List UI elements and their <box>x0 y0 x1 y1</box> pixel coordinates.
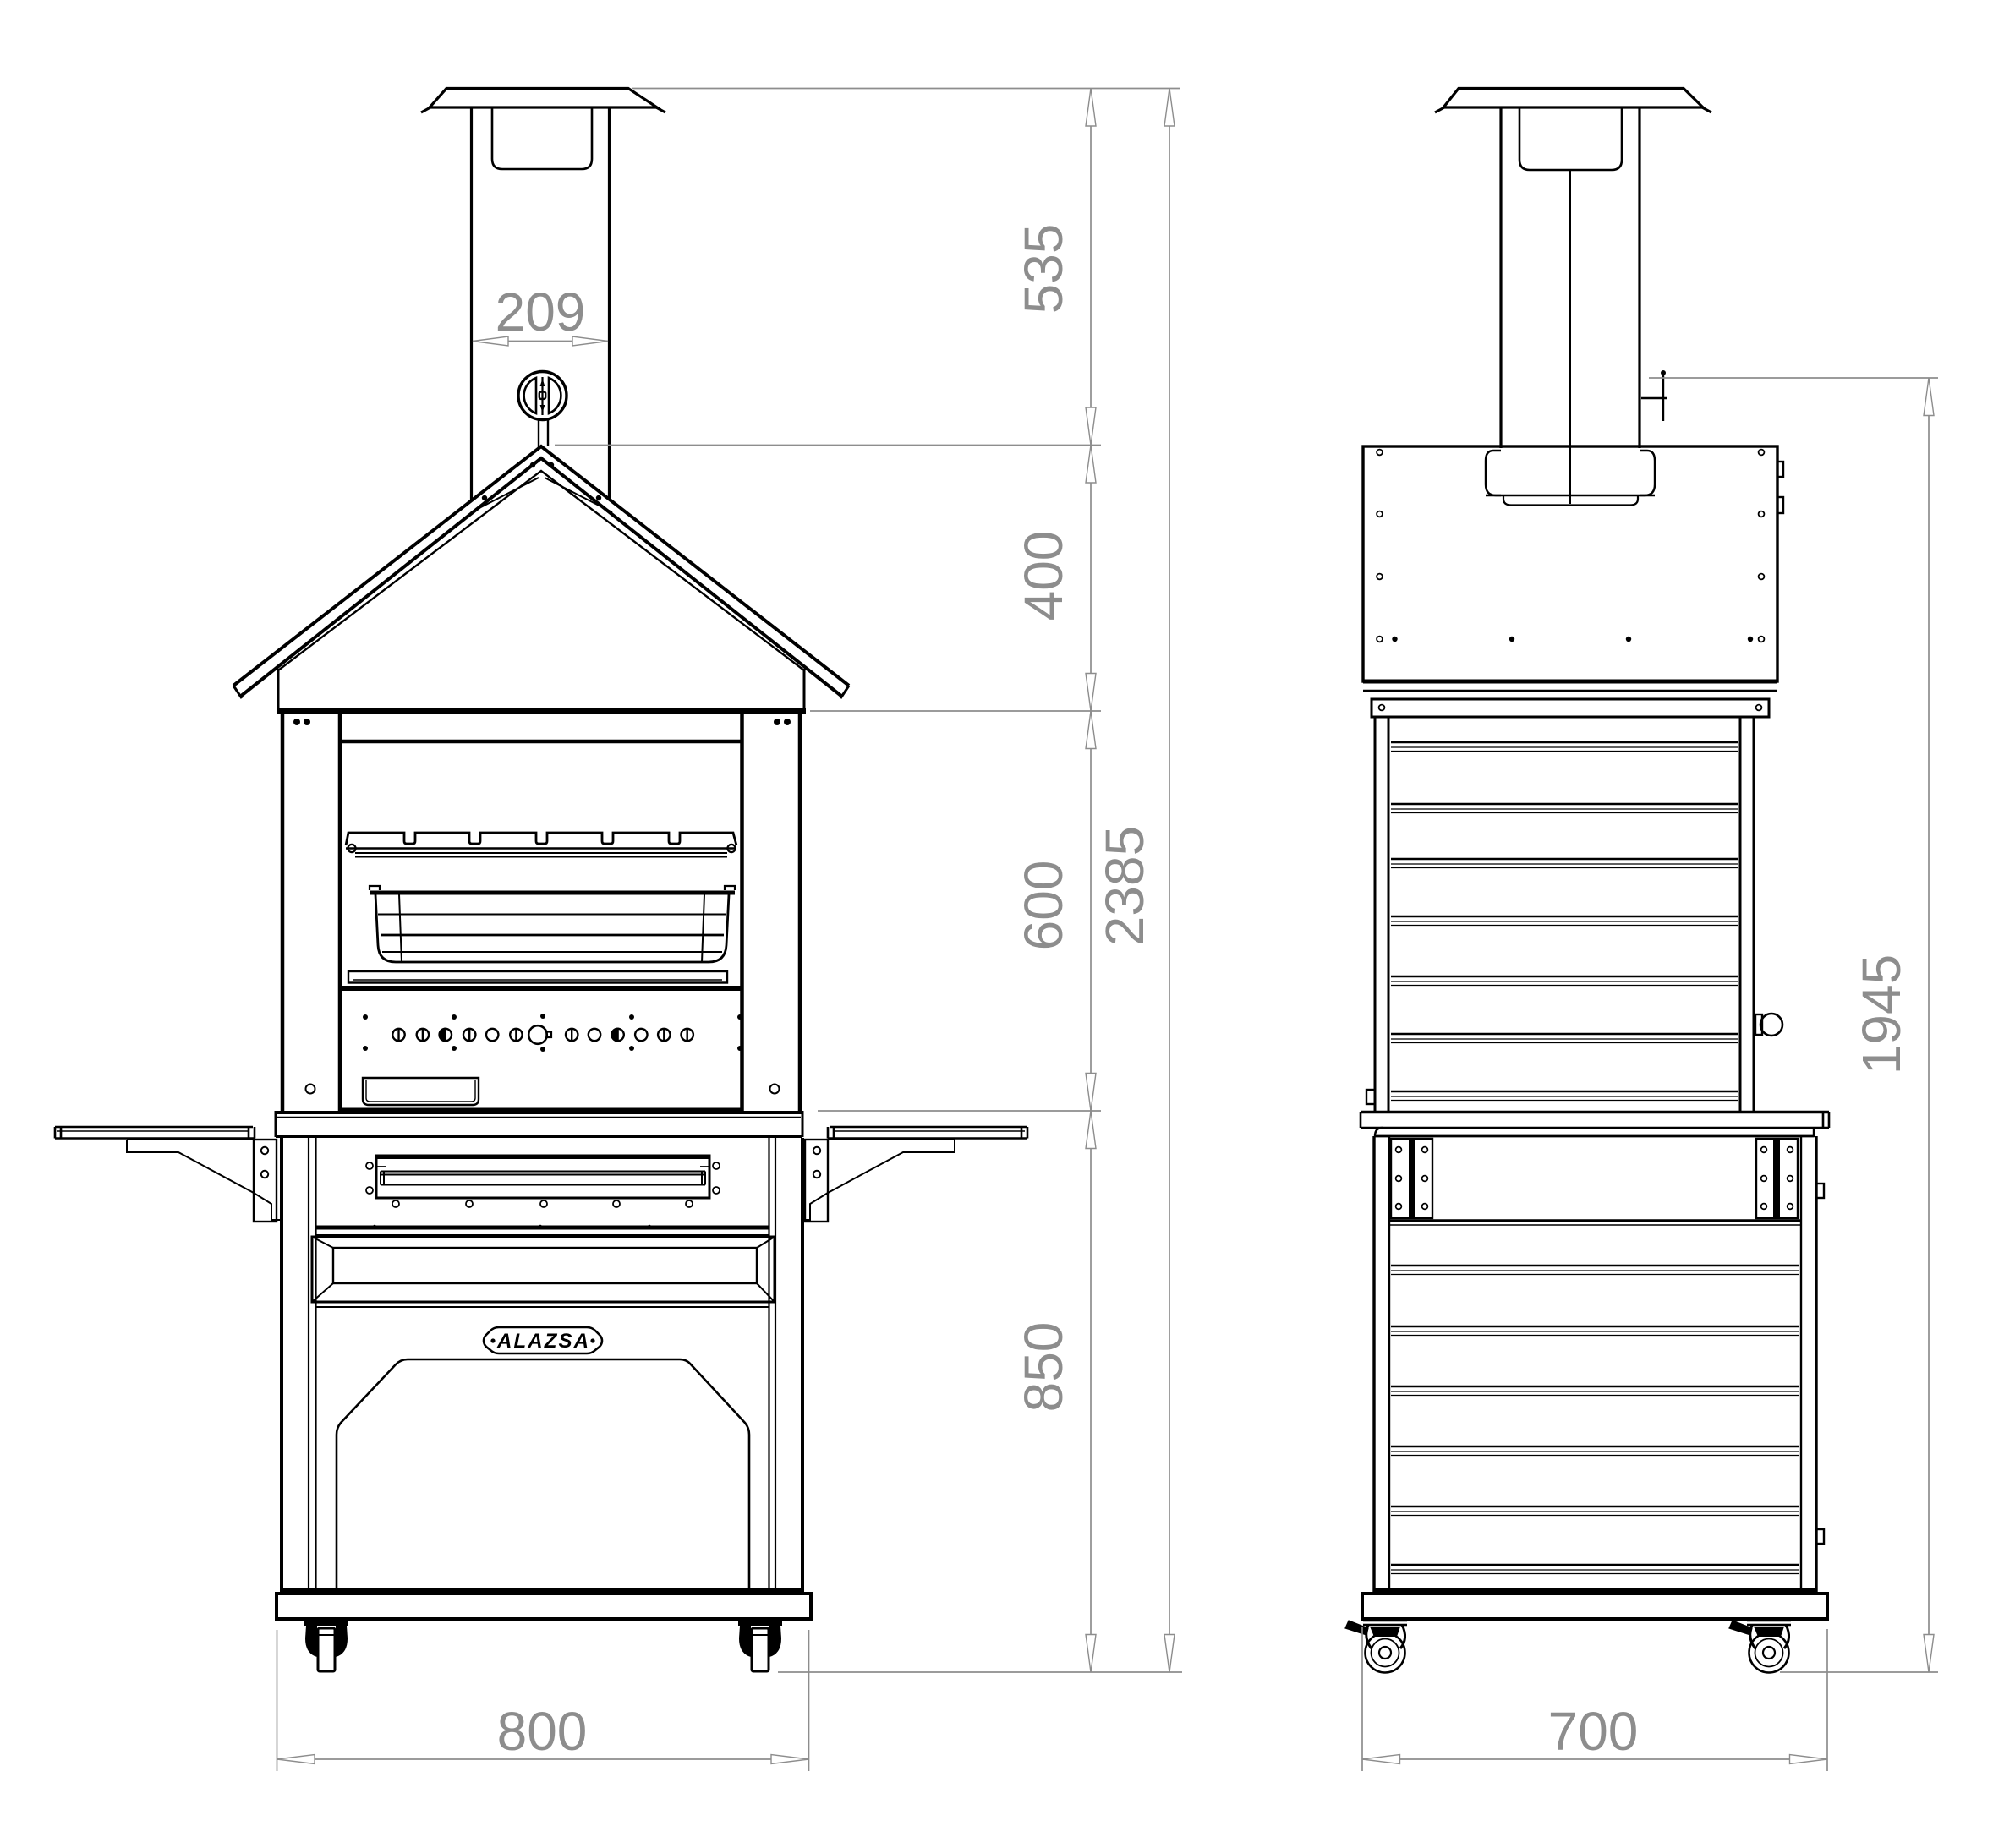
svg-text:209: 209 <box>496 282 586 342</box>
svg-text:800: 800 <box>497 1701 588 1762</box>
svg-text:850: 850 <box>1013 1322 1074 1413</box>
svg-text:ALAZSA: ALAZSA <box>496 1330 589 1353</box>
svg-text:535: 535 <box>1013 224 1074 314</box>
svg-text:600: 600 <box>1013 861 1074 951</box>
svg-text:2385: 2385 <box>1094 826 1155 946</box>
svg-text:700: 700 <box>1548 1701 1639 1762</box>
svg-text:1945: 1945 <box>1851 954 1912 1074</box>
svg-text:400: 400 <box>1013 531 1074 621</box>
